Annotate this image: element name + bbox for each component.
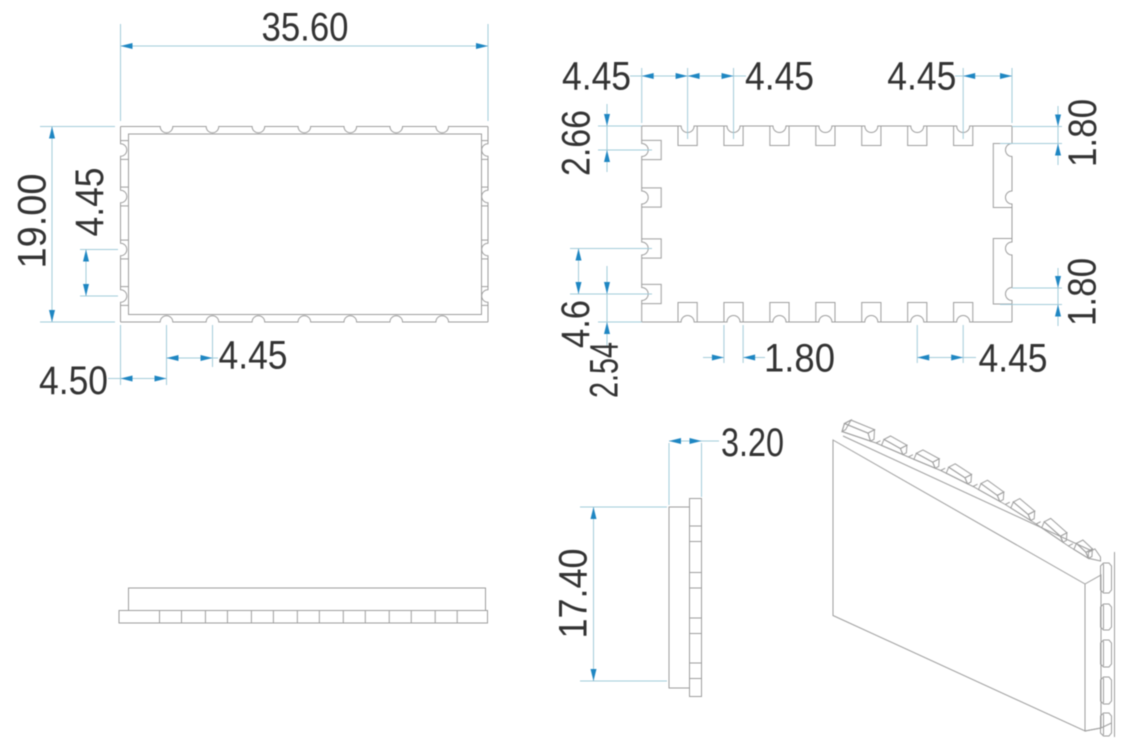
svg-text:3.20: 3.20 <box>721 421 784 465</box>
svg-text:17.40: 17.40 <box>552 549 596 639</box>
svg-text:4.45: 4.45 <box>887 55 956 99</box>
svg-text:4.45: 4.45 <box>562 55 631 99</box>
svg-text:4.50: 4.50 <box>39 359 108 403</box>
svg-text:4.45: 4.45 <box>68 168 112 237</box>
svg-text:1.80: 1.80 <box>1061 99 1105 167</box>
svg-text:35.60: 35.60 <box>262 6 349 50</box>
svg-text:4.45: 4.45 <box>979 337 1048 381</box>
svg-text:19.00: 19.00 <box>11 174 55 269</box>
svg-text:4.45: 4.45 <box>745 55 814 99</box>
svg-text:2.54: 2.54 <box>583 342 627 398</box>
svg-text:1.80: 1.80 <box>1061 258 1105 326</box>
svg-text:4.6: 4.6 <box>554 300 598 348</box>
svg-text:4.45: 4.45 <box>219 334 288 378</box>
svg-text:1.80: 1.80 <box>764 337 835 381</box>
svg-text:2.66: 2.66 <box>555 110 599 176</box>
